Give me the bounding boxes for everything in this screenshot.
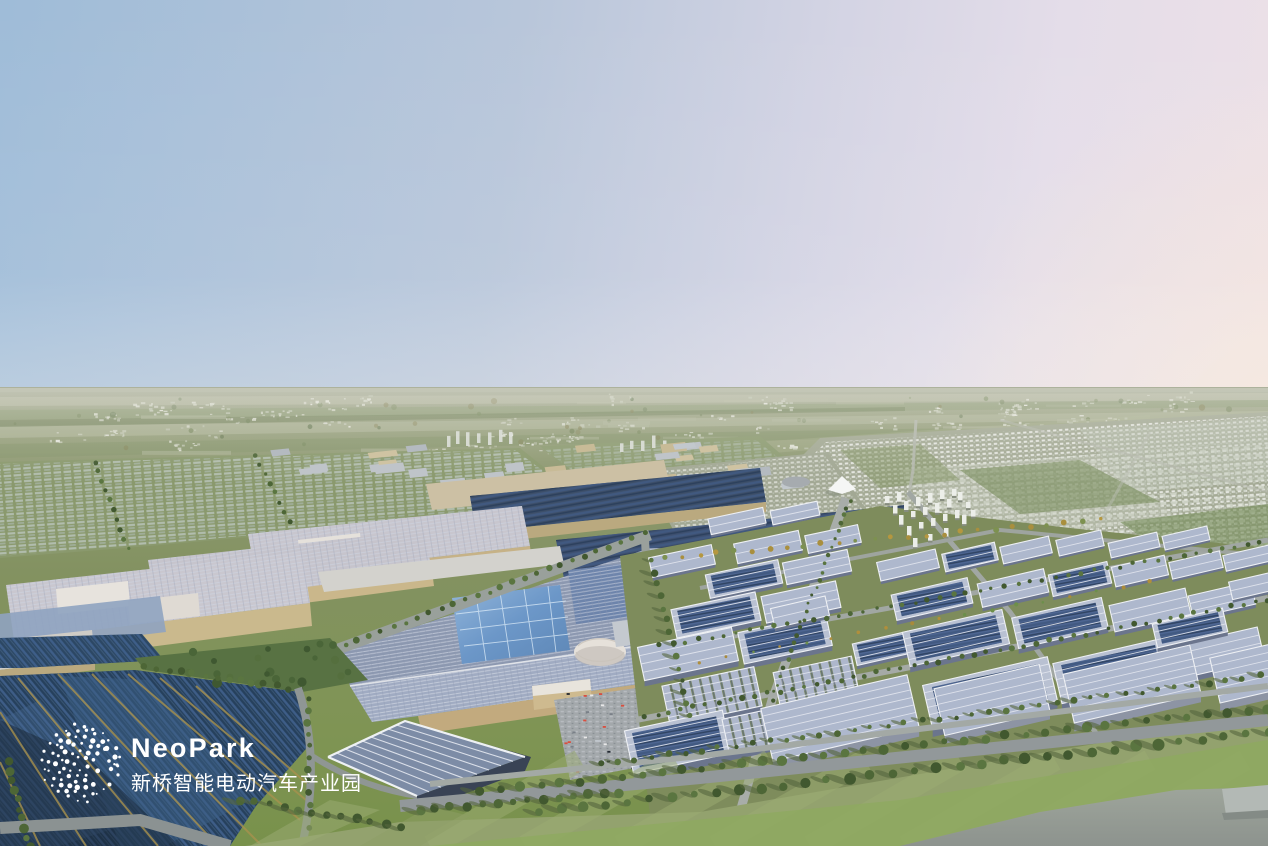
svg-text:NeoPark: NeoPark [131, 733, 256, 763]
svg-text:新桥智能电动汽车产业园: 新桥智能电动汽车产业园 [131, 772, 362, 795]
